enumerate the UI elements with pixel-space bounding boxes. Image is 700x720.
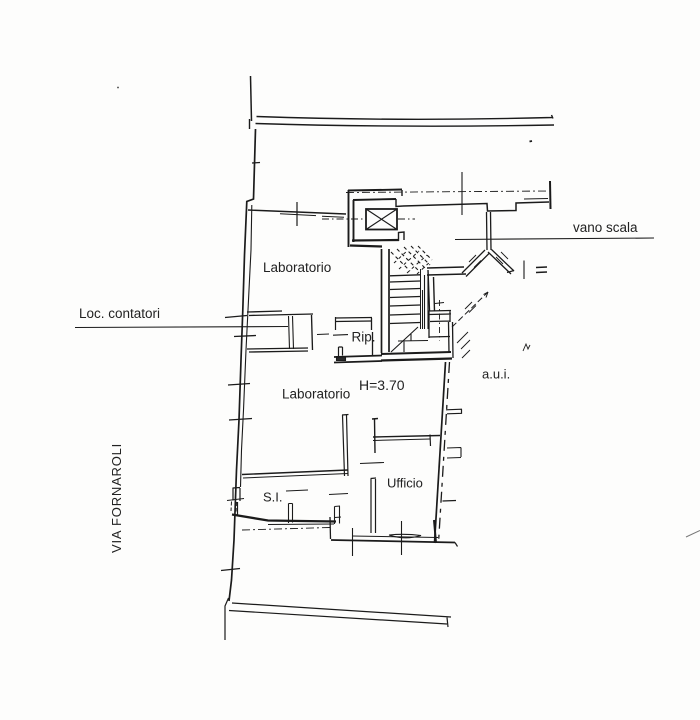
svg-text:a.u.i.: a.u.i. — [482, 367, 510, 382]
svg-text:Laboratorio: Laboratorio — [282, 387, 350, 402]
svg-text:Rip.: Rip. — [352, 330, 376, 345]
svg-text:Laboratorio: Laboratorio — [263, 260, 331, 275]
svg-text:Ufficio: Ufficio — [387, 476, 423, 491]
svg-text:vano scala: vano scala — [573, 220, 638, 235]
svg-text:H=3.70: H=3.70 — [359, 377, 405, 393]
svg-text:S.I.: S.I. — [263, 490, 283, 505]
svg-text:Loc. contatori: Loc. contatori — [79, 306, 160, 321]
svg-text:VIA FORNAROLI: VIA FORNAROLI — [109, 443, 124, 553]
